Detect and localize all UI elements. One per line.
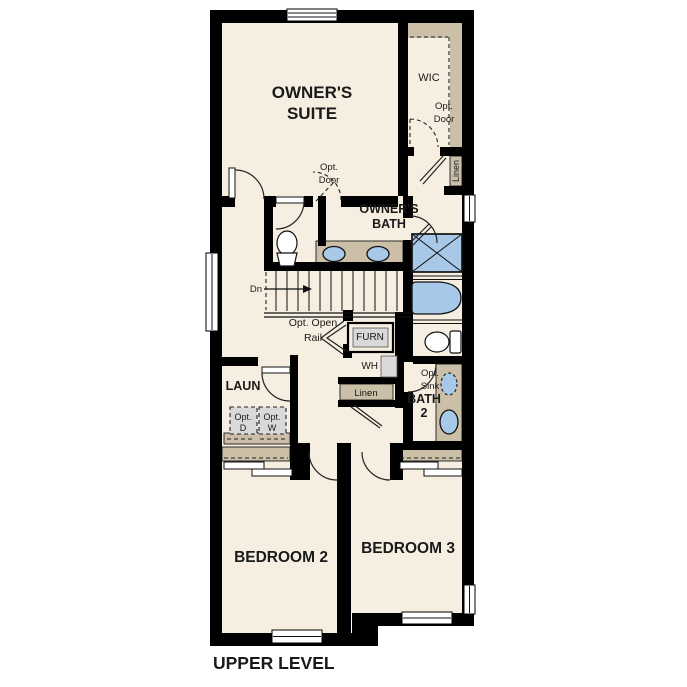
floor-plan-page: OWNER'S SUITE WIC Opt. Door Linen Opt. D…	[0, 0, 687, 687]
bedroom3-closet-door	[400, 462, 438, 469]
water-heater-unit	[381, 356, 397, 377]
toilet2-tank	[450, 331, 461, 353]
opt-washer-label-line2: W	[268, 423, 277, 433]
bath2-label-line1: BATH	[407, 392, 441, 406]
owners-suite-label-line1: OWNER'S	[272, 83, 353, 102]
furnace-label: FURN	[356, 332, 384, 343]
stairs-dn-label: Dn	[250, 284, 262, 295]
opt-washer-label-line1: Opt.	[263, 412, 280, 422]
wc-door-leaf	[276, 197, 304, 203]
bedroom2-label: BEDROOM 2	[234, 549, 328, 566]
laundry-label: LAUN	[226, 379, 261, 393]
linen-upper-label: Linen	[451, 160, 461, 182]
wic-opt-door-label-line1: Opt.	[435, 101, 453, 112]
wic-label: WIC	[418, 72, 439, 84]
hall-linen-label: Linen	[354, 388, 377, 399]
laundry-counter	[224, 433, 290, 444]
window-top	[287, 9, 337, 21]
laundry-door-leaf	[262, 367, 290, 373]
suite-opt-door-label-line2: Door	[319, 175, 340, 186]
suite-opt-door-label-line1: Opt.	[320, 162, 338, 173]
toilet-icon	[277, 231, 297, 255]
bedroom3-closet-door2	[424, 469, 462, 476]
opt-open-rail-label-line1: Opt. Open	[289, 317, 338, 329]
sink-icon-left	[323, 247, 345, 262]
bath2-label-line2: 2	[421, 406, 428, 420]
suite-door-leaf	[229, 168, 235, 198]
owners-suite-label-line2: SUITE	[287, 104, 337, 123]
bathtub	[412, 282, 461, 314]
opt-open-rail-label-line2: Rail	[304, 332, 322, 344]
owners-bath-label-line1: OWNER'S	[359, 202, 418, 216]
toilet-base	[277, 253, 297, 266]
wic-shelf-right	[450, 23, 462, 147]
opt-sink-icon	[441, 373, 457, 395]
opt-sink-label-line2: Sink	[421, 381, 440, 392]
bedroom2-closet-door	[224, 462, 264, 469]
floor-plan: OWNER'S SUITE WIC Opt. Door Linen Opt. D…	[0, 0, 687, 687]
page-title: UPPER LEVEL	[213, 653, 335, 673]
bedroom2-closet-door2	[252, 469, 292, 476]
wic-opt-door-label-line2: Door	[434, 114, 455, 125]
opt-sink-label-line1: Opt.	[421, 368, 439, 379]
bedroom2-closet-shelf	[222, 447, 290, 461]
water-heater-label: WH	[361, 361, 378, 372]
owners-bath-label-line2: BATH	[372, 217, 406, 231]
toilet2-icon	[425, 332, 449, 352]
opt-dryer-label-line1: Opt.	[234, 412, 251, 422]
bath2-sink-icon	[440, 410, 458, 434]
bedroom3-label: BEDROOM 3	[361, 540, 455, 557]
sink-icon-right	[367, 247, 389, 262]
opt-dryer-label-line2: D	[240, 423, 247, 433]
